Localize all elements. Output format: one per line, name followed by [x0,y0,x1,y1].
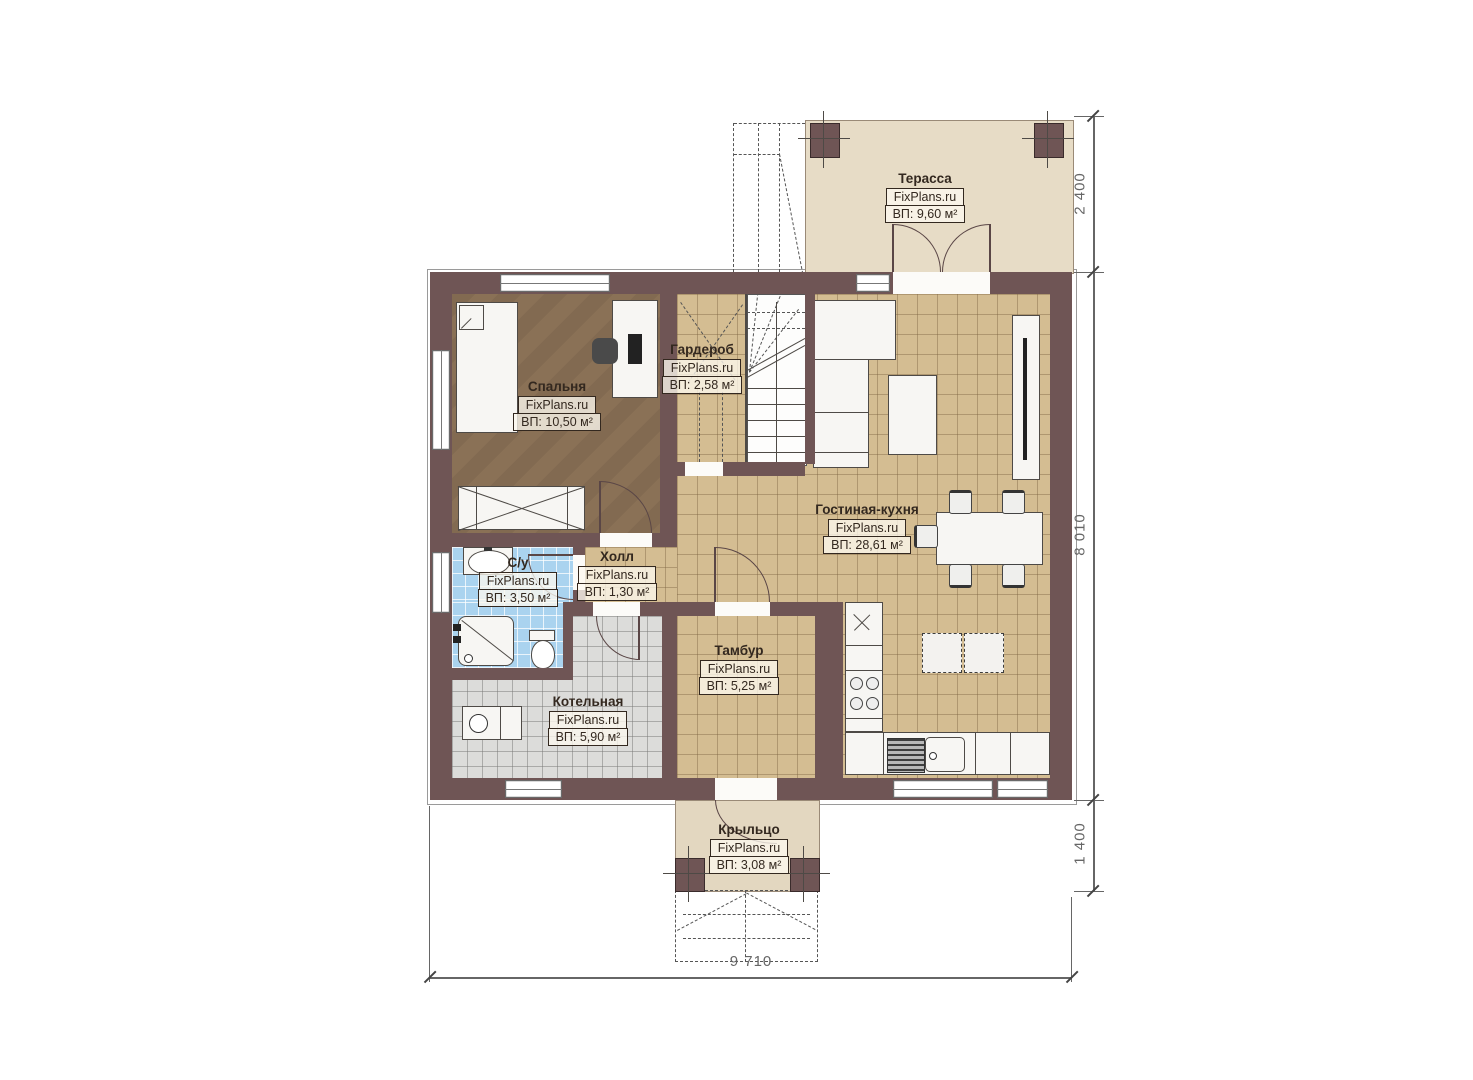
dim-porch-depth: 1 400 [1072,804,1089,884]
roof-projection-dashed [779,154,804,279]
room-label-terrace: Терасса FixPlans.ru ВП: 9,60 м² [865,171,985,223]
wall-bedroom-right [660,294,677,533]
entry-door-opening [715,778,777,800]
room-area: ВП: 5,90 м² [548,728,629,746]
room-label-living-kitchen: Гостиная-кухня FixPlans.ru ВП: 28,61 м² [807,502,927,554]
fixplans-watermark: FixPlans.ru [828,519,907,537]
room-name: Спальня [497,379,617,394]
dim-total-width: 9 710 [711,953,791,970]
room-name: Гардероб [642,342,762,357]
terrace-door-opening [893,272,990,294]
room-label-bedroom: Спальня FixPlans.ru ВП: 10,50 м² [497,379,617,431]
fixplans-watermark: FixPlans.ru [710,839,789,857]
porch-steps-dashed [675,890,818,962]
dim-line-bottom [430,977,1072,979]
boiler-divider [500,706,501,740]
window-bathroom-left [432,552,450,613]
fixplans-watermark: FixPlans.ru [479,572,558,590]
wall-stairs-right [805,294,815,464]
stove-burner [866,677,879,690]
terrace-post [810,123,840,158]
terrace-door-leaf [989,224,991,272]
counter-divider [845,645,883,646]
wall-vestibule-right [815,602,843,778]
dining-table [936,512,1043,565]
roof-projection-dashed [734,123,805,124]
wardrobe-dashed [699,392,700,462]
stove-burner [850,697,863,710]
sofa-cushion-line [813,452,869,453]
sofa-chaise [813,300,896,360]
dim-line-right [1093,116,1095,892]
wall-bathroom-bottom [452,668,573,680]
vestibule-door-opening [715,602,770,616]
fixplans-watermark: FixPlans.ru [578,566,657,584]
fixplans-watermark: FixPlans.ru [886,188,965,206]
wall-right [1050,272,1072,800]
wall-vestibule-top [677,602,715,616]
dim-extension [429,806,430,982]
room-label-boiler: Котельная FixPlans.ru ВП: 5,90 м² [528,694,648,746]
counter-divider [845,718,883,719]
room-area: ВП: 9,60 м² [885,205,966,223]
closet-divider [567,486,568,530]
kitchen-island [922,633,962,673]
floor-plan-canvas: Терасса FixPlans.ru ВП: 9,60 м² Спальня … [0,0,1473,1080]
dining-chair [1002,564,1025,588]
boiler-dial [469,714,488,733]
dining-chair [1002,490,1025,514]
room-label-vestibule: Тамбур FixPlans.ru ВП: 5,25 м² [679,643,799,695]
dish-rack [887,738,925,773]
room-name: Крыльцо [689,822,809,837]
counter-divider [975,732,976,775]
boiler-door-opening [593,602,640,616]
dining-chair [949,490,972,514]
counter-divider [845,670,883,671]
roof-projection-dashed [758,123,759,272]
water-valve [453,624,461,631]
roof-projection-dashed [733,123,734,272]
room-area: ВП: 3,50 м² [478,589,559,607]
room-name: Терасса [865,171,985,186]
room-name: Гостиная-кухня [807,502,927,517]
dim-extension [1071,897,1072,982]
dim-house-depth: 8 010 [1072,495,1089,575]
room-area: ВП: 3,08 м² [709,856,790,874]
room-label-bathroom: С/у FixPlans.ru ВП: 3,50 м² [458,555,578,607]
vestibule-door-leaf [714,547,716,602]
kitchen-island [964,633,1004,673]
post-axis-line [823,111,824,168]
shower-drain [464,654,473,663]
wall-vestibule-left [662,602,677,778]
roof-projection-dashed [779,123,780,272]
bedroom-door-leaf [599,481,601,533]
room-area: ВП: 28,61 м² [823,536,911,554]
stove-burner [850,677,863,690]
bedroom-door-opening [600,533,652,547]
porch-step-line [683,914,810,915]
window-kitchen-bottom [997,780,1048,798]
room-area: ВП: 10,50 м² [513,413,601,431]
window-boiler-bottom [505,780,562,798]
fixplans-watermark: FixPlans.ru [700,660,779,678]
desk-chair [592,338,618,364]
room-name: Котельная [528,694,648,709]
window-bedroom-left [432,350,450,450]
room-name: С/у [458,555,578,570]
dim-terrace-depth: 2 400 [1072,154,1089,234]
room-label-porch: Крыльцо FixPlans.ru ВП: 3,08 м² [689,822,809,874]
wardrobe-dashed [722,392,723,462]
sink-faucet [929,752,937,760]
boiler-door-leaf [638,616,640,660]
roof-projection-dashed [734,154,780,155]
water-valve [453,636,461,643]
desk-monitor [628,334,642,364]
room-area: ВП: 2,58 м² [662,376,743,394]
stair-direction-line [776,302,777,466]
counter-divider [1010,732,1011,775]
fixplans-watermark: FixPlans.ru [663,359,742,377]
fixplans-watermark: FixPlans.ru [549,711,628,729]
porch-step-centerline [745,890,746,962]
room-name: Тамбур [679,643,799,658]
window-bedroom-top [500,274,610,292]
porch-step-line [683,938,810,939]
wall-vestibule-top [770,602,815,616]
window-kitchen-bottom [893,780,993,798]
coffee-table [888,375,937,455]
terrace-post [1034,123,1064,158]
wardrobe-door-opening [685,462,723,476]
room-label-wardrobe: Гардероб FixPlans.ru ВП: 2,58 м² [642,342,762,394]
counter-divider [883,732,884,775]
stove-burner [866,697,879,710]
room-area: ВП: 1,30 м² [577,583,658,601]
tv-panel [1023,338,1027,460]
fixplans-watermark: FixPlans.ru [518,396,597,414]
toilet-bowl [531,640,555,669]
closet-divider [476,486,477,530]
post-axis-line [1047,111,1048,168]
terrace-door-leaf [892,224,894,272]
sofa-cushion-line [813,412,869,413]
dining-chair [949,564,972,588]
window-sidelight-top [856,274,890,292]
room-area: ВП: 5,25 м² [699,677,780,695]
